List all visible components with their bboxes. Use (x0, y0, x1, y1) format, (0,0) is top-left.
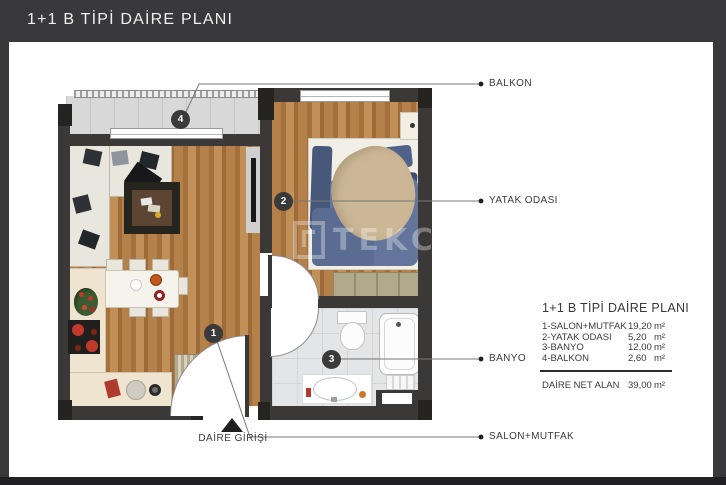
wall-bedroom-bathroom (318, 296, 432, 308)
balcony-sliding-door (110, 128, 223, 139)
badge-salon-mutfak: 1 (204, 324, 223, 343)
legend-room-unit: m² (654, 343, 672, 354)
callout-balkon: BALKON (489, 78, 532, 89)
cooktop-burners (72, 324, 84, 336)
wall-left (58, 106, 70, 420)
legend-row: 3-BANYO 12,00 m² (542, 343, 672, 354)
dining-plate (130, 279, 142, 291)
legend-room-name: 4-BALKON (542, 354, 628, 365)
legend-room-name: 3-BANYO (542, 343, 628, 354)
wall-corner-block (58, 104, 72, 126)
legend-room-unit: m² (654, 322, 672, 333)
legend-room-area: 2,60 (628, 354, 654, 365)
legend-room-area: 19,20 (628, 322, 654, 333)
sink-faucet (331, 397, 337, 402)
badge-balkon: 4 (171, 110, 190, 129)
callout-salon-mutfak: SALON+MUTFAK (489, 431, 574, 442)
toilet-bowl (340, 322, 365, 350)
wall-corner-block (418, 400, 432, 420)
vanity-item (359, 391, 366, 398)
legend-total-name: DAİRE NET ALAN (542, 381, 628, 392)
wall-bottom-right (258, 406, 432, 420)
wall-corner-block (258, 88, 274, 120)
tv-icon (251, 158, 256, 222)
coffee-table-bowl (155, 212, 161, 218)
towel-rack (386, 375, 415, 390)
legend-divider (540, 370, 672, 372)
legend-total-row: DAİRE NET ALAN 39,00 m² (542, 381, 672, 392)
legend-total-unit: m² (654, 381, 672, 392)
legend-room-unit: m² (654, 354, 672, 365)
wall-corner-block (58, 400, 72, 420)
wall-corner-block (418, 88, 432, 108)
kitchen-sink (126, 380, 146, 400)
bottom-bar (0, 477, 726, 485)
shaft (382, 393, 412, 404)
wall-right (418, 88, 432, 420)
wall-corner-block (258, 402, 270, 420)
sofa-pillow (83, 148, 103, 166)
callout-banyo: BANYO (489, 353, 526, 364)
badge-banyo: 3 (322, 350, 341, 369)
dining-plate (154, 290, 165, 301)
vanity-item (306, 388, 311, 397)
legend-row: 1-SALON+MUTFAK 19,20 m² (542, 322, 672, 333)
callout-yatak-odasi: YATAK ODASI (489, 195, 558, 206)
legend-total-area: 39,00 (628, 381, 654, 392)
bedroom-door-leaf (268, 255, 272, 298)
plant-flowers (79, 292, 84, 297)
nightstand-lamp (410, 123, 415, 128)
legend-title: 1+1 B TİPİ DAİRE PLANI (542, 301, 672, 315)
dining-table (103, 270, 179, 308)
page-title: 1+1 B TİPİ DAİRE PLANI (27, 11, 233, 29)
bedroom-window (300, 90, 390, 102)
legend-table: 1+1 B TİPİ DAİRE PLANI 1-SALON+MUTFAK 19… (540, 301, 672, 392)
plant (74, 288, 98, 316)
entrance-label: DAİRE GİRİŞİ (183, 433, 283, 444)
bathtub-drain (396, 322, 401, 327)
legend-room-name: 1-SALON+MUTFAK (542, 322, 628, 333)
entrance-door-leaf (245, 335, 249, 417)
legend-row: 4-BALKON 2,60 m² (542, 354, 672, 365)
balcony-railing (74, 90, 261, 98)
pot (149, 384, 161, 396)
entrance-arrow-icon (221, 418, 243, 432)
sofa-pillow (111, 150, 129, 166)
floor-plan-page: { "header": { "title": "1+1 B TİPİ DAİRE… (0, 0, 726, 485)
legend-room-area: 12,00 (628, 343, 654, 354)
dining-plate (150, 274, 162, 286)
badge-yatak-odasi: 2 (274, 192, 293, 211)
bathroom-door-leaf (267, 308, 271, 356)
